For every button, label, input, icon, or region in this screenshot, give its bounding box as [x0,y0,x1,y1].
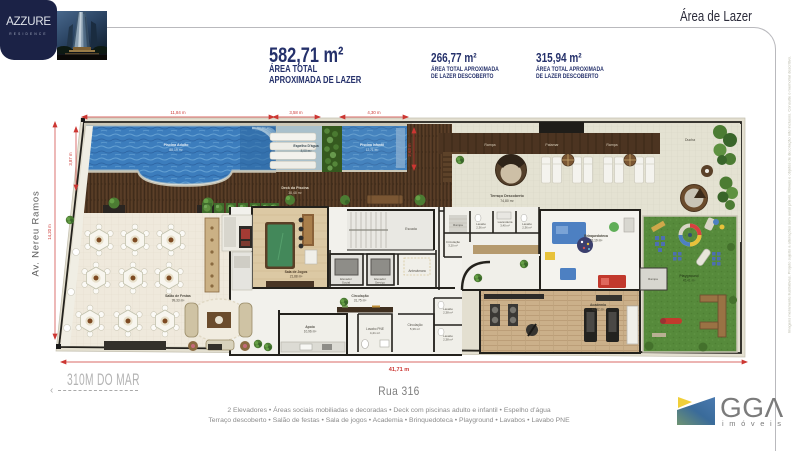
svg-text:Brinquedoteca: Brinquedoteca [584,234,608,238]
svg-text:88,19 m²: 88,19 m² [169,148,183,152]
svg-text:3,20 m²: 3,20 m² [448,244,458,248]
svg-text:4,30 m: 4,30 m [367,110,381,115]
svg-text:3,87 m: 3,87 m [68,152,73,166]
svg-text:45,41 m²: 45,41 m² [683,279,696,283]
svg-text:74,80 m²: 74,80 m² [500,199,514,203]
svg-text:Playground: Playground [679,274,698,278]
svg-text:14,20 m: 14,20 m [47,224,52,240]
svg-text:Rampa: Rampa [648,277,658,281]
svg-text:8,00 m²: 8,00 m² [301,149,312,153]
svg-text:Escada: Escada [405,227,417,231]
svg-text:41,71 m: 41,71 m [389,367,410,373]
svg-text:23,19 m²: 23,19 m² [590,239,603,243]
svg-text:Rampa: Rampa [484,143,495,147]
svg-text:2,63 m: 2,63 m [407,143,412,157]
svg-text:11,84 m: 11,84 m [170,110,186,115]
svg-text:2,38 m²: 2,38 m² [443,311,453,315]
svg-text:Social: Social [342,281,351,285]
svg-text:4,41 m²: 4,41 m² [370,331,380,335]
svg-text:99,33 m²: 99,33 m² [172,299,185,303]
svg-text:2,38 m²: 2,38 m² [443,338,453,342]
svg-text:31,75 m²: 31,75 m² [354,299,367,303]
svg-text:Rampa: Rampa [606,143,617,147]
svg-text:Circulação: Circulação [351,294,368,298]
svg-text:Terraço Descoberto: Terraço Descoberto [490,194,524,198]
svg-text:2,36 m²: 2,36 m² [522,226,532,230]
svg-text:10,96 m²: 10,96 m² [304,330,317,334]
svg-text:12,71 m²: 12,71 m² [366,148,379,152]
svg-text:38,48 m²: 38,48 m² [288,191,302,195]
svg-text:Sala de Jogos: Sala de Jogos [285,270,308,274]
svg-text:3,58 m: 3,58 m [289,110,303,115]
svg-text:Espelho D'água: Espelho D'água [293,144,318,148]
svg-text:Salão de Festas: Salão de Festas [165,294,191,298]
svg-text:Patamar: Patamar [545,143,559,147]
svg-text:Piscina Infantil: Piscina Infantil [360,143,384,147]
svg-text:Academia: Academia [590,303,606,307]
svg-text:Ducha: Ducha [685,138,695,142]
svg-text:Apoio: Apoio [305,325,315,329]
svg-text:21,88 m²: 21,88 m² [290,275,303,279]
svg-text:5,36 m²: 5,36 m² [410,327,420,331]
svg-text:42,32 m²: 42,32 m² [592,308,605,312]
svg-text:3,40 m²: 3,40 m² [500,224,510,228]
svg-text:Rampa: Rampa [453,223,463,227]
svg-text:Piscina Adulto: Piscina Adulto [164,143,190,147]
svg-text:2,36 m²: 2,36 m² [476,226,486,230]
svg-text:Deck da Piscina: Deck da Piscina [281,186,309,190]
svg-text:Serviço: Serviço [375,281,385,285]
svg-text:Antecâmara: Antecâmara [408,269,425,273]
